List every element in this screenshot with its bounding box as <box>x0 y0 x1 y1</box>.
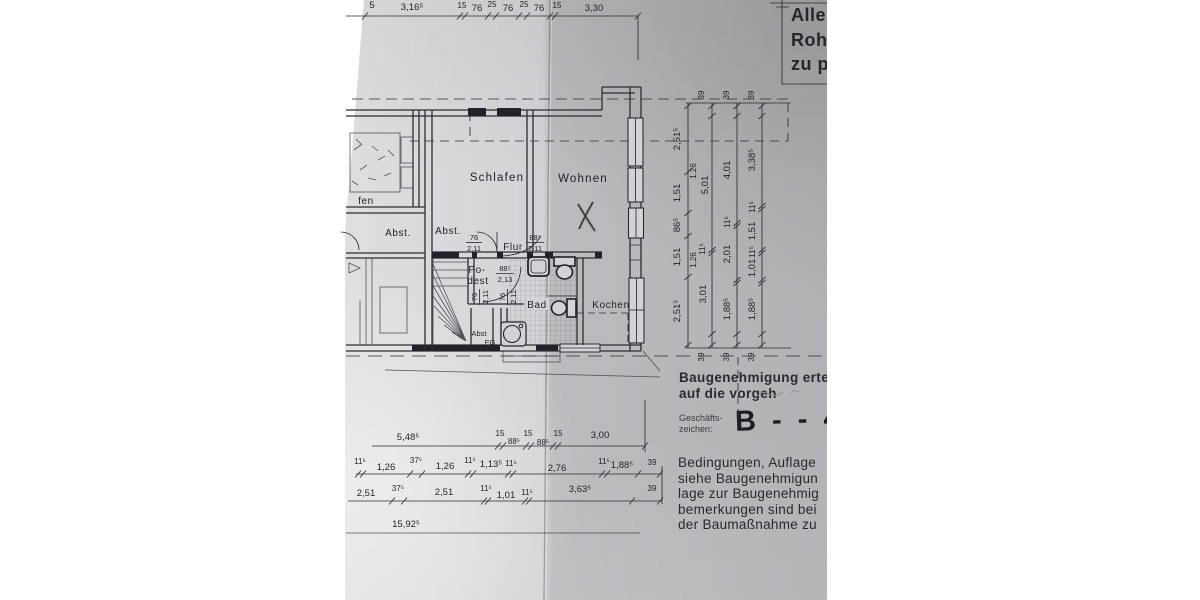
dim-label: 11⁵ <box>748 246 757 258</box>
wall-fill <box>536 345 558 351</box>
dim-label: 88⁵ <box>508 437 520 446</box>
site-lines <box>346 351 826 428</box>
dim-label: 11⁵ <box>480 484 492 493</box>
dim-label: 2,51⁵ <box>672 128 683 150</box>
window <box>629 278 644 343</box>
terrace-step <box>503 351 560 362</box>
door-swing-arc <box>341 232 359 250</box>
dim-label: 1,13⁵ <box>480 459 502 470</box>
exterior-walls <box>346 87 644 352</box>
room-label-podest-1: Po- <box>468 265 485 276</box>
window-lintel <box>497 108 521 116</box>
washbasin <box>501 322 526 346</box>
dim-label: 25 <box>488 0 497 9</box>
dim-label: 1,88⁵ <box>747 298 758 320</box>
dim-label: 11⁵ <box>505 459 517 468</box>
dim-label: 3,00 <box>591 430 610 441</box>
room-label-bad: Bad <box>527 300 547 311</box>
dim-label: 1,51 <box>672 248 683 267</box>
dim-label: 39 <box>697 352 706 361</box>
room-label-flur: Flur <box>503 242 523 253</box>
dim-label: 15 <box>553 1 562 10</box>
form-box-border <box>770 0 827 84</box>
dim-label: 15 <box>496 429 505 438</box>
dim-label: 15 <box>524 429 533 438</box>
dim-label: 1,51 <box>747 222 758 241</box>
direction-arrow <box>349 263 360 273</box>
sink <box>528 257 549 276</box>
svg-text:76: 76 <box>470 233 478 242</box>
window <box>629 208 644 238</box>
dim-label: 2,51 <box>435 487 454 498</box>
dim-label: 37⁵ <box>392 484 404 493</box>
dim-label: 1,88⁵ <box>611 460 633 471</box>
dim-label: 86⁵ <box>672 218 683 233</box>
dim-label: 11⁵ <box>748 201 757 213</box>
left-unit: fen Abst. <box>341 110 425 345</box>
svg-text:2,13: 2,13 <box>498 275 513 284</box>
door-dim-fraction: 76 2,11 <box>466 233 482 253</box>
dim-label: 3,30 <box>585 3 604 14</box>
svg-text:76: 76 <box>498 293 507 301</box>
dim-label: 37⁵ <box>410 456 422 465</box>
kitchen-counter-dashed <box>577 313 628 344</box>
closet <box>401 167 413 188</box>
dim-label: 1,26 <box>436 461 455 472</box>
room-label-wohnen: Wohnen <box>558 173 608 185</box>
dim-label: 5,01 <box>700 176 711 195</box>
room-label-abst-eg: Abst <box>471 329 487 338</box>
svg-text:2,11: 2,11 <box>481 290 490 304</box>
dim-label: 39 <box>697 90 706 99</box>
dim-label: 5,48⁵ <box>397 432 419 443</box>
room-label-kochen: Kochen <box>592 300 630 311</box>
room-label-eg: EG <box>485 338 496 347</box>
dim-label: 1,01 <box>497 490 516 501</box>
window-lintel <box>468 108 486 116</box>
dim-label: 2,51⁵ <box>672 300 683 322</box>
svg-text:2,11: 2,11 <box>528 244 542 253</box>
dim-label: 1,51 <box>672 184 683 203</box>
svg-text:76: 76 <box>470 293 479 301</box>
right-dimension-block: 2,51⁵ 1,51 86⁵ 1,51 2,51⁵ 39 5,01 11⁵ 3,… <box>672 90 791 361</box>
window <box>628 168 643 202</box>
room-label-schlafen-cut: fen <box>358 196 374 207</box>
room-label-abst-mid: Abst. <box>435 226 461 237</box>
dim-label: 2,76 <box>548 463 567 474</box>
dim-label: 39 <box>747 90 756 99</box>
dim-label: 11⁵ <box>698 243 707 255</box>
svg-text:2,11: 2,11 <box>467 244 481 253</box>
toilet <box>554 257 575 279</box>
window <box>628 118 643 166</box>
scanned-floorplan-photo-page: Alle Roh zu p Baugenehmigung erteil auf … <box>0 0 1200 600</box>
svg-text:2,11: 2,11 <box>509 290 518 304</box>
dim-label: 11⁵ <box>464 456 476 465</box>
top-dimension-chain: 5 3,16⁵ 15 76 25 76 25 76 15 3,30 <box>346 0 641 60</box>
dim-label: 15 <box>458 1 467 10</box>
faint-handwriting <box>757 391 799 396</box>
floorplan-drawing: 5 3,16⁵ 15 76 25 76 25 76 15 3,30 <box>0 0 1200 600</box>
door-dim-fraction-vertical: 76 2,11 <box>470 289 490 305</box>
dim-label: 39 <box>747 352 756 361</box>
dim-label: 5 <box>369 0 374 11</box>
dim-label: 3,63⁵ <box>569 484 591 495</box>
toilet <box>552 299 577 317</box>
svg-text:88⁵: 88⁵ <box>499 264 510 273</box>
x-mark <box>578 202 595 231</box>
room-label-podest-2: dest <box>467 276 488 287</box>
dim-label: 39 <box>648 458 657 467</box>
dim-label: 11⁵ <box>723 216 732 228</box>
dim-label: 1,88⁵ <box>722 298 733 320</box>
dim-label: 2,51 <box>357 488 376 499</box>
window <box>560 344 600 352</box>
dim-label: 4,01 <box>722 161 733 180</box>
bottom-dimension-rows: 5,48⁵ 15 88⁵ 15 88⁵ 15 3,00 11⁵ 1,26 37⁵… <box>346 400 663 533</box>
dim-label-total-width: 15,92⁵ <box>392 519 420 530</box>
dim-label: 15 <box>554 429 563 438</box>
dim-label: 39 <box>722 90 731 99</box>
bed <box>350 133 400 192</box>
dim-label: 76 <box>503 3 514 14</box>
dim-label: 88⁵ <box>537 438 549 447</box>
dim-label: 3,01 <box>698 285 709 304</box>
dim-label: 1,26 <box>377 462 396 473</box>
dim-label: 11⁵ <box>521 488 533 497</box>
dim-label: 76 <box>534 3 545 14</box>
dim-label: 3,16⁵ <box>401 2 423 13</box>
dim-label: 3,38⁵ <box>747 149 758 171</box>
dim-label: 1,26 <box>689 252 698 268</box>
dim-label: 39 <box>722 352 731 361</box>
dim-label: 39 <box>648 484 657 493</box>
dim-label: 1,01 <box>747 259 758 278</box>
dim-label: 76 <box>472 3 483 14</box>
roof-overhang-dashed <box>352 99 792 141</box>
dim-label: 1,26 <box>689 163 698 179</box>
room-label-schlafen: Schlafen <box>470 172 524 184</box>
svg-text:88⁵: 88⁵ <box>529 233 540 242</box>
dim-label: 2,01 <box>722 245 733 264</box>
stairs <box>433 258 468 345</box>
dim-label: 25 <box>520 0 529 9</box>
room-label-abst-left: Abst. <box>385 228 411 239</box>
dim-label: 11⁵ <box>354 457 366 466</box>
dim-label: 11⁵ <box>598 457 610 466</box>
